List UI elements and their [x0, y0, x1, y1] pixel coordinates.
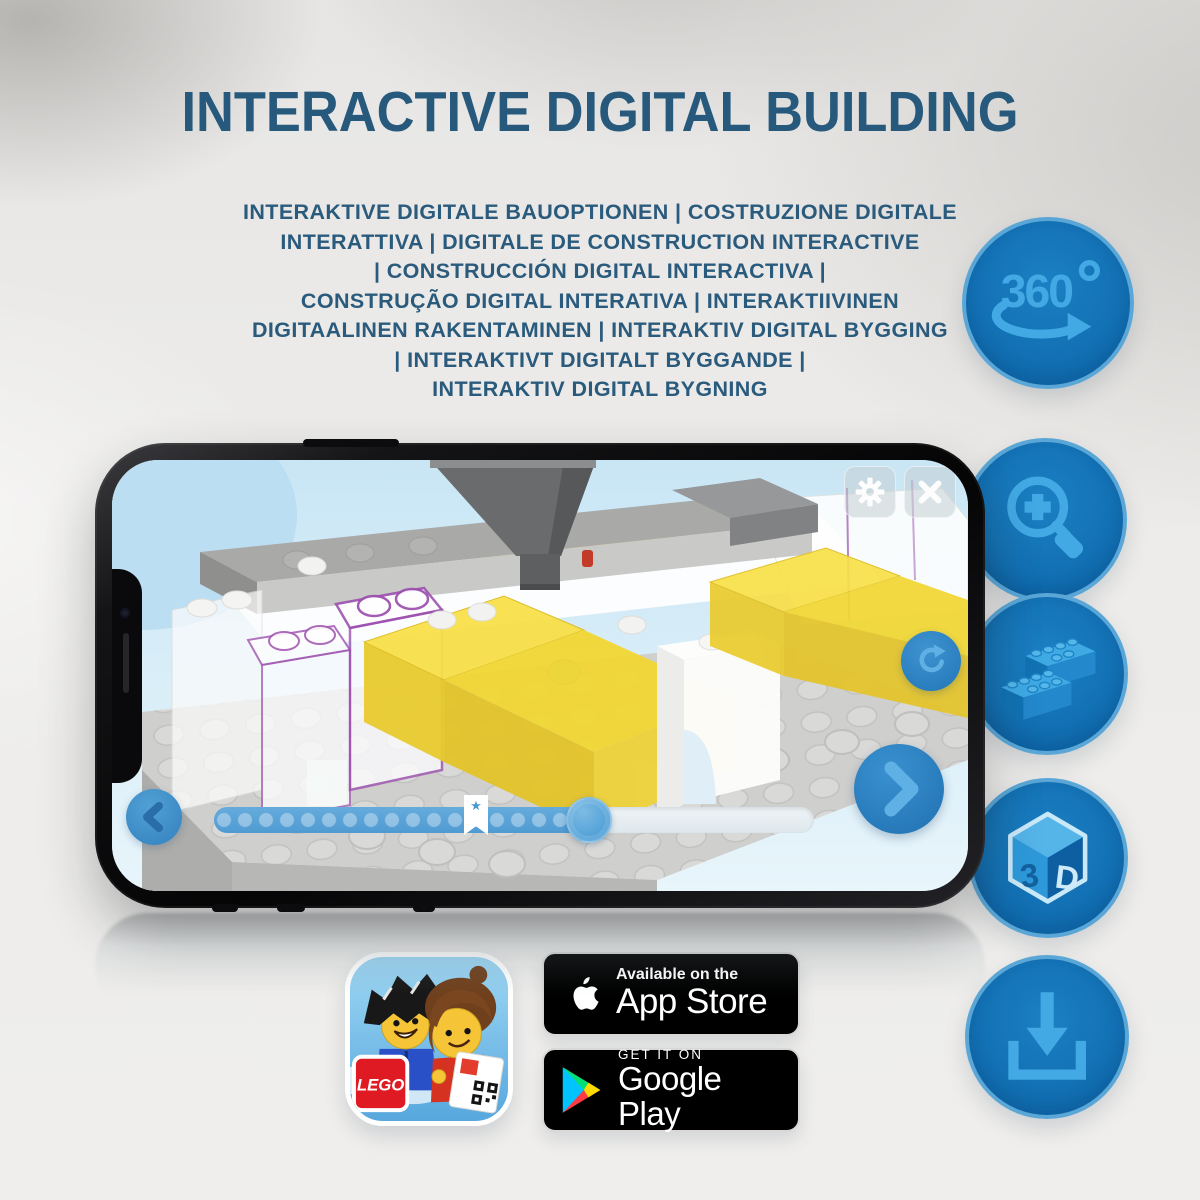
qr-card: [449, 1051, 504, 1113]
previous-step-button[interactable]: [126, 789, 182, 845]
phone-mute-switch: [413, 904, 435, 912]
chevron-left-icon: [126, 789, 182, 845]
svg-text:D: D: [1053, 858, 1081, 898]
google-play-label: Google Play: [618, 1062, 782, 1131]
subtitle-line: DIGITAALINEN RAKENTAMINEN | INTERAKTIV D…: [150, 316, 1050, 346]
feature-brick-badge: [966, 593, 1128, 755]
google-play-badge[interactable]: GET IT ON Google Play: [542, 1048, 800, 1132]
google-play-icon: [560, 1066, 604, 1114]
ghost-brick: [248, 626, 350, 822]
close-button[interactable]: [904, 466, 956, 518]
next-step-button[interactable]: [854, 744, 944, 834]
phone-side-button: [303, 439, 399, 447]
page-title: INTERACTIVE DIGITAL BUILDING: [48, 84, 1152, 141]
chevron-right-icon: [854, 744, 944, 834]
subtitle-line: INTERAKTIVE DIGITALE BAUOPTIONEN | COSTR…: [150, 198, 1050, 228]
subtitle-line: CONSTRUÇÃO DIGITAL INTERATIVA | INTERAKT…: [150, 287, 1050, 317]
3d-cube-icon: 3 D: [993, 803, 1102, 912]
phone-mockup: ★: [95, 443, 985, 908]
poster: INTERACTIVE DIGITAL BUILDING INTERAKTIVE…: [0, 0, 1200, 1200]
lego-logo: LEGO: [354, 1057, 407, 1110]
earpiece-speaker: [123, 633, 129, 693]
phone-reflection: [95, 913, 985, 1018]
feature-download-badge: [965, 955, 1129, 1119]
subtitle-line: INTERATTIVA | DIGITALE DE CONSTRUCTION I…: [150, 228, 1050, 258]
close-icon: [913, 475, 947, 509]
subtitle-translations: INTERAKTIVE DIGITALE BAUOPTIONEN | COSTR…: [150, 198, 1050, 405]
feature-360-rotation-badge: 360: [962, 217, 1134, 389]
subtitle-line: | INTERAKTIVT DIGITALT BYGGANDE |: [150, 346, 1050, 376]
lego-brick-icon: [992, 619, 1103, 730]
360-rotation-icon: 360: [989, 244, 1107, 362]
rotate-model-button[interactable]: [901, 631, 961, 691]
download-icon: [991, 981, 1103, 1093]
phone-volume-button: [212, 904, 238, 912]
subtitle-line: INTERAKTIV DIGITAL BYGNING: [150, 375, 1050, 405]
svg-text:LEGO: LEGO: [357, 1075, 405, 1094]
zoom-in-icon: [989, 464, 1101, 576]
gear-icon: [853, 475, 887, 509]
feature-zoom-badge: [963, 438, 1127, 602]
front-camera: [121, 609, 129, 617]
settings-button[interactable]: [844, 466, 896, 518]
progress-slider-knob[interactable]: [566, 797, 612, 843]
phone-notch: [112, 569, 142, 783]
svg-text:360: 360: [1001, 265, 1072, 317]
subtitle-line: | CONSTRUCCIÓN DIGITAL INTERACTIVA |: [150, 257, 1050, 287]
feature-3d-badge: 3 D: [968, 778, 1128, 938]
phone-volume-button: [277, 904, 305, 912]
star-icon: ★: [464, 798, 488, 814]
build-progress-bar[interactable]: ★: [214, 807, 814, 833]
progress-fill: [214, 807, 592, 833]
app-viewer-screen: ★: [112, 460, 968, 891]
rotate-icon: [911, 641, 951, 681]
